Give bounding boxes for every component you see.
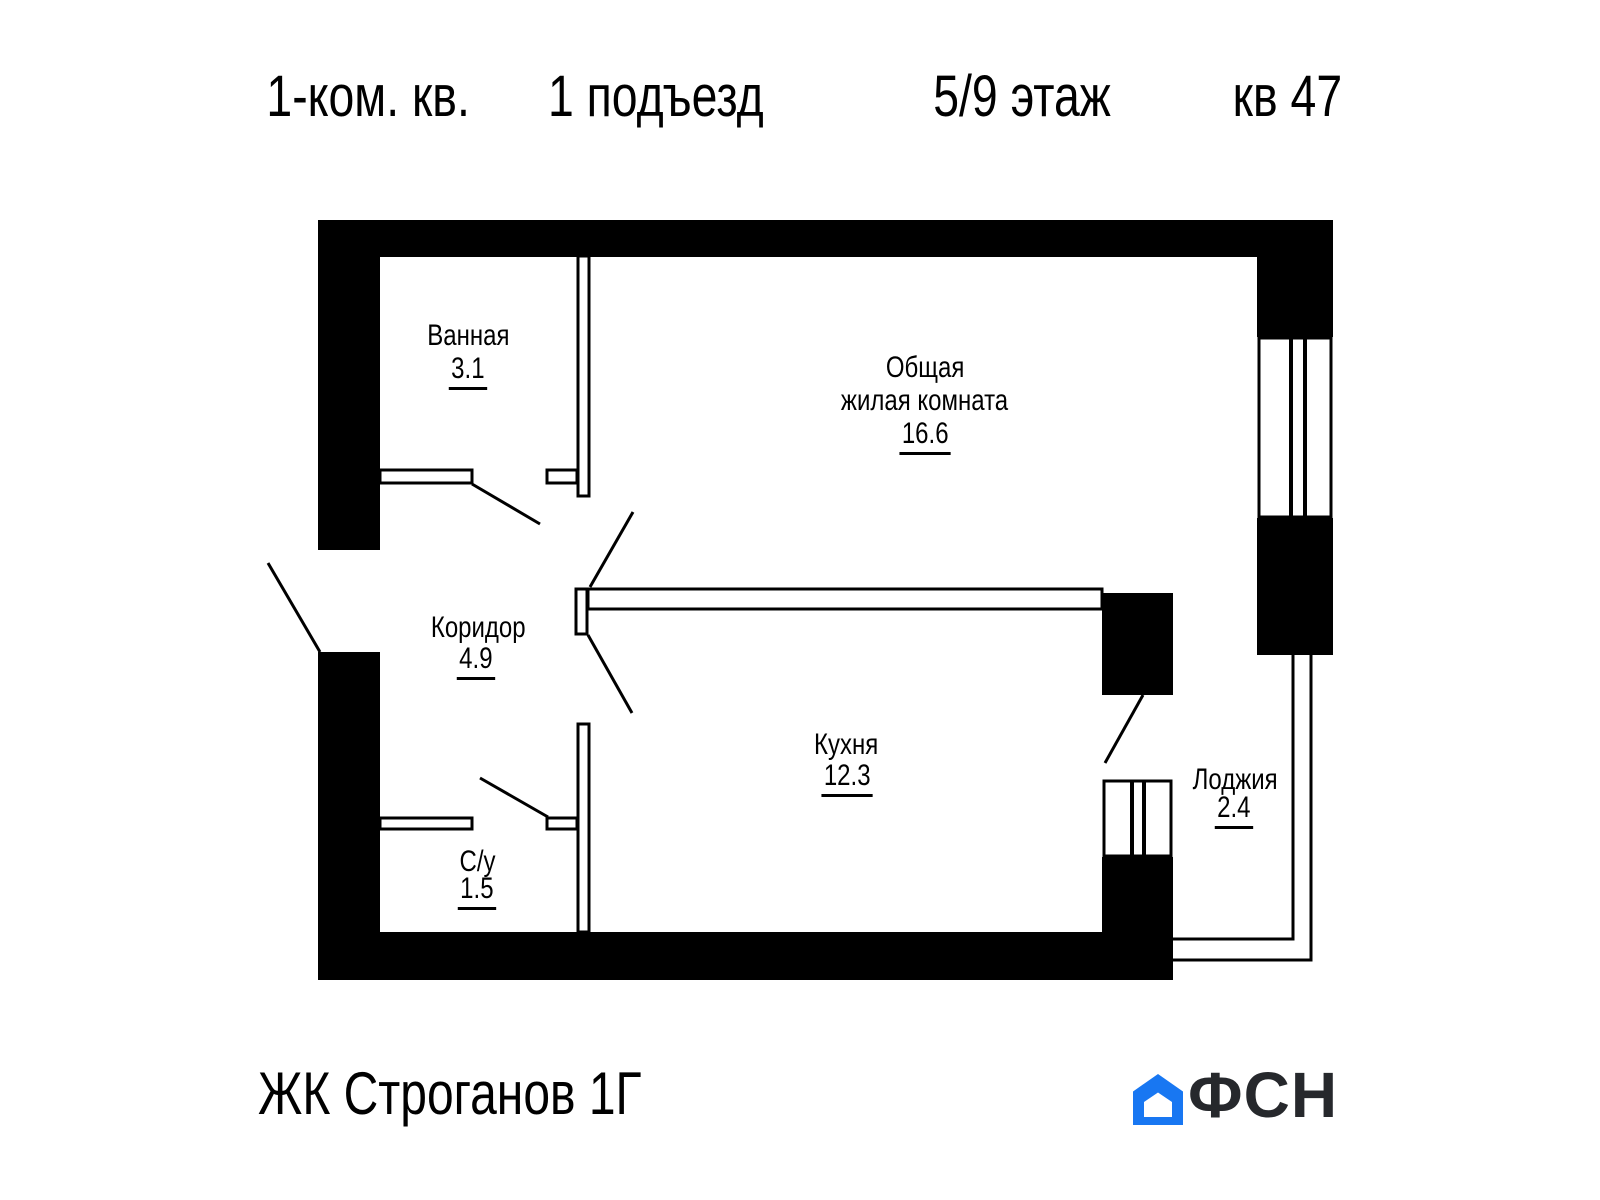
door-bathroom [472,484,540,524]
wall-bathroom-stub [547,470,577,483]
wall-kitchen-loggia-upper [1102,593,1173,695]
wall-wc-top [380,818,472,829]
wall-left-lower [318,652,380,980]
room-label-corridor: Коридор [328,613,628,643]
room-area-kitchen: 12.3 [697,761,997,797]
wall-kitchen-loggia-lower [1102,857,1173,980]
door-entrance [268,563,320,652]
room-label-living-line1: Общая [775,353,1075,383]
door-wc [480,778,548,817]
room-label-bathroom: Ванная [318,321,618,351]
wall-living-kitchen [588,589,1102,609]
wall-right-lower [1257,518,1333,655]
room-area-loggia: 2.4 [1084,793,1384,829]
room-area-corridor: 4.9 [326,644,626,680]
wall-right-upper [1257,220,1333,337]
living-room-window [1259,337,1331,518]
floorplan-page: 1-ком. кв. 1 подъезд 5/9 этаж кв 47 [0,0,1600,1200]
complex-name: ЖК Строганов 1Г [258,1064,737,1124]
door-loggia [1105,695,1143,763]
room-area-wc: 1.5 [327,874,627,910]
house-icon [1133,1074,1183,1125]
room-label-living-line2: жилая комната [775,386,1075,416]
room-area-living: 16.6 [775,419,1075,455]
logo-text: ФСН [1188,1063,1338,1127]
house-icon-shape [1133,1074,1183,1125]
floor-plan-drawing [0,0,1600,1200]
room-area-bathroom: 3.1 [318,354,618,390]
wall-bathroom-bottom [380,470,472,483]
door-living-room [590,512,633,587]
wall-top [318,220,1333,257]
wall-wc-stub [547,818,577,829]
wall-bottom [318,932,1173,980]
room-label-kitchen: Кухня [696,730,996,760]
